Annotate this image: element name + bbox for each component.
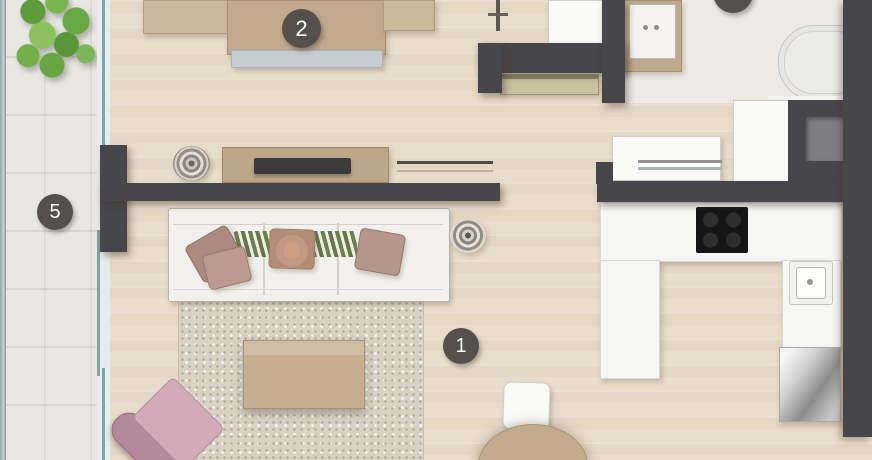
dining-table bbox=[478, 424, 588, 460]
plant-icon bbox=[4, 0, 100, 82]
entry-bench bbox=[500, 74, 599, 95]
room-marker-2: 2 bbox=[282, 9, 321, 48]
sink-faucet-icon bbox=[807, 279, 813, 285]
room-marker-5-label: 5 bbox=[49, 201, 60, 224]
round-plate-decor bbox=[173, 146, 210, 181]
tv bbox=[254, 158, 351, 174]
nightstand-right bbox=[383, 0, 435, 31]
washbasin bbox=[629, 4, 676, 59]
floor-plan: 1 2 4 5 bbox=[0, 0, 872, 460]
bathtub-inner bbox=[784, 31, 844, 94]
wall-right bbox=[843, 0, 872, 437]
service-shaft-recess bbox=[806, 117, 843, 161]
basin-faucet-icon bbox=[643, 25, 648, 30]
bed-foot-bench bbox=[231, 50, 383, 68]
room-marker-5: 5 bbox=[37, 194, 73, 230]
towel-bar bbox=[638, 160, 722, 173]
cooktop bbox=[696, 207, 748, 253]
room-marker-1-label: 1 bbox=[455, 335, 466, 358]
basin-drain-icon bbox=[654, 25, 659, 30]
kitchen-sink bbox=[789, 261, 833, 305]
bathroom-vanity bbox=[622, 0, 682, 72]
wall-kitchen bbox=[597, 181, 845, 202]
sofa-pillow bbox=[354, 227, 407, 276]
wall-entry-stub bbox=[478, 43, 502, 93]
sofa-pillow bbox=[268, 228, 315, 270]
bathroom-door-leaf bbox=[733, 100, 792, 184]
bathtub bbox=[778, 25, 850, 100]
wall-entry-vertical bbox=[602, 0, 625, 103]
room-marker-1: 1 bbox=[443, 328, 479, 364]
coffee-table bbox=[243, 340, 365, 409]
dishwasher bbox=[779, 347, 841, 422]
sofa-backrest-line bbox=[173, 224, 443, 225]
room-marker-2-label: 2 bbox=[295, 16, 307, 42]
wall-living-room bbox=[100, 183, 500, 201]
nightstand-left bbox=[143, 0, 229, 34]
hall-cabinet bbox=[612, 136, 721, 181]
spiral-bowl-decor bbox=[450, 218, 486, 253]
kitchen-counter-left bbox=[600, 260, 660, 379]
glass-door-pane-lower bbox=[102, 368, 105, 460]
floor-lamp-arm bbox=[488, 13, 508, 16]
room-marker-4-label: 4 bbox=[727, 0, 738, 5]
metal-rack bbox=[397, 161, 493, 182]
